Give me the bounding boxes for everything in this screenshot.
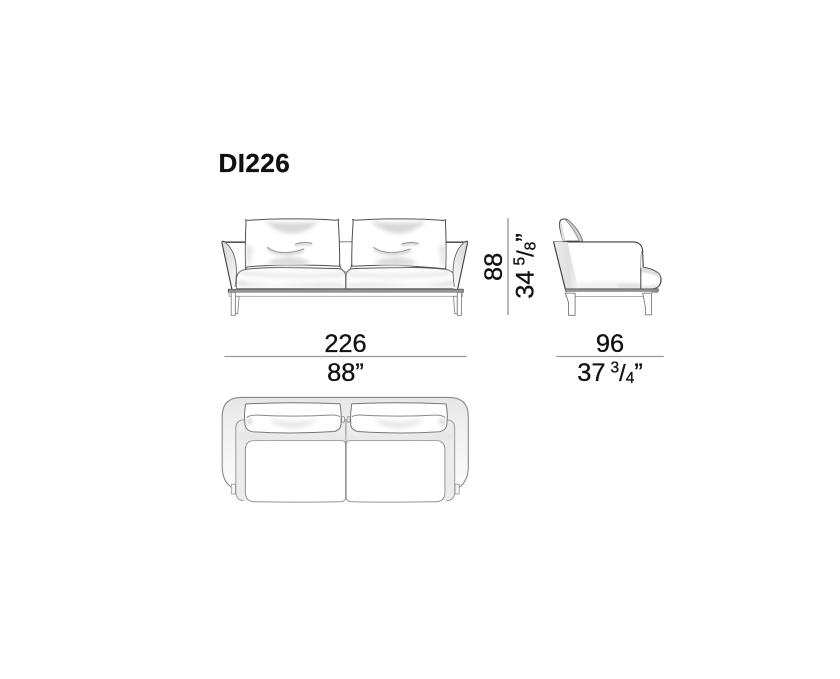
svg-text:88”: 88”	[327, 359, 364, 387]
svg-text:226: 226	[324, 330, 366, 358]
svg-text:37 3/4”: 37 3/4”	[577, 359, 643, 387]
svg-text:DI226: DI226	[219, 148, 291, 178]
svg-text:34 5/8”: 34 5/8”	[512, 233, 540, 299]
svg-text:96: 96	[596, 330, 624, 358]
svg-text:88: 88	[480, 253, 508, 281]
